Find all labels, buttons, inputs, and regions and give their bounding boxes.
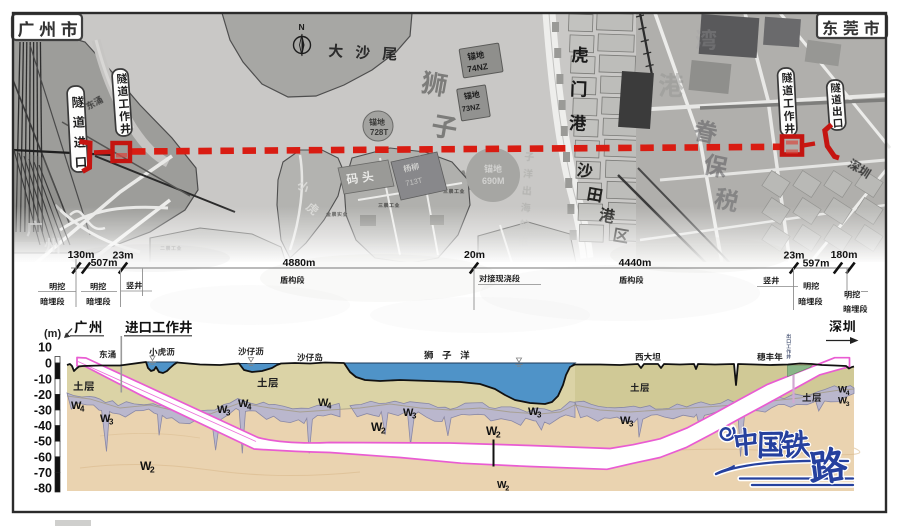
svg-text:3: 3 — [226, 409, 231, 418]
svg-text:23m: 23m — [112, 250, 133, 262]
svg-text:597m: 597m — [803, 258, 830, 270]
svg-text:N: N — [299, 22, 305, 32]
svg-text:20m: 20m — [464, 249, 485, 261]
svg-text:23m: 23m — [783, 250, 804, 262]
svg-text:0: 0 — [45, 357, 52, 371]
svg-text:690M: 690M — [482, 176, 505, 186]
svg-text:4: 4 — [247, 403, 252, 412]
svg-text:4: 4 — [80, 405, 85, 414]
svg-text:2: 2 — [381, 426, 386, 436]
svg-text:3: 3 — [846, 401, 850, 408]
svg-text:728T: 728T — [370, 128, 388, 137]
svg-text:3: 3 — [109, 418, 114, 427]
svg-text:-40: -40 — [34, 419, 52, 433]
svg-text:180m: 180m — [831, 249, 858, 261]
svg-text:10: 10 — [38, 341, 52, 355]
svg-text:3: 3 — [412, 412, 417, 421]
svg-text:(m): (m) — [44, 328, 61, 340]
svg-text:2: 2 — [496, 430, 501, 440]
svg-text:-30: -30 — [34, 404, 52, 418]
svg-text:4440m: 4440m — [619, 257, 652, 269]
svg-text:4: 4 — [327, 402, 332, 411]
svg-text:3: 3 — [629, 420, 634, 429]
svg-text:-70: -70 — [34, 466, 52, 480]
svg-text:-20: -20 — [34, 388, 52, 402]
svg-text:4880m: 4880m — [283, 257, 316, 269]
svg-text:-10: -10 — [34, 372, 52, 386]
svg-text:-60: -60 — [34, 450, 52, 464]
svg-text:2: 2 — [150, 465, 155, 475]
svg-text:2: 2 — [505, 484, 509, 493]
svg-text:-80: -80 — [34, 482, 52, 496]
svg-text:-50: -50 — [34, 435, 52, 449]
svg-text:3: 3 — [537, 411, 542, 420]
